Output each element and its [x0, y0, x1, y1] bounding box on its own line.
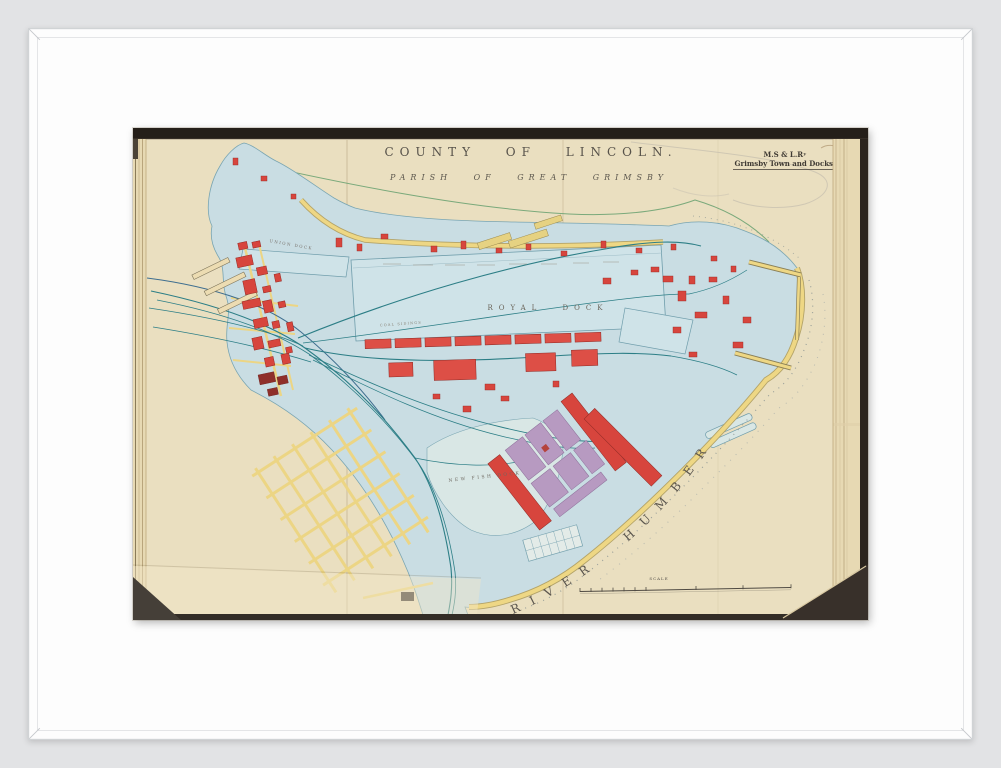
print-photo: COUNTY OF LINCOLN. PARISH OF GREAT GRIMS… [133, 128, 868, 620]
royal-dock-water [351, 245, 666, 341]
page-edges-right [833, 139, 868, 615]
photo-background: COUNTY OF LINCOLN. PARISH OF GREAT GRIMS… [0, 0, 1001, 768]
scale-label: SCALE [649, 576, 668, 581]
corner-label-line1: M.S & L.Rʸ [763, 150, 807, 159]
map-title: COUNTY OF LINCOLN. [384, 145, 677, 159]
corner-label-line2: Grimsby Town and Docks. [735, 159, 836, 168]
map-artwork: COUNTY OF LINCOLN. PARISH OF GREAT GRIMS… [133, 128, 868, 620]
map-subtitle: PARISH OF GREAT GRIMSBY [389, 173, 668, 182]
label-royal-dock: ROYAL DOCK [488, 304, 609, 312]
book-cover-top [133, 128, 868, 139]
page-edges-left [133, 139, 146, 615]
